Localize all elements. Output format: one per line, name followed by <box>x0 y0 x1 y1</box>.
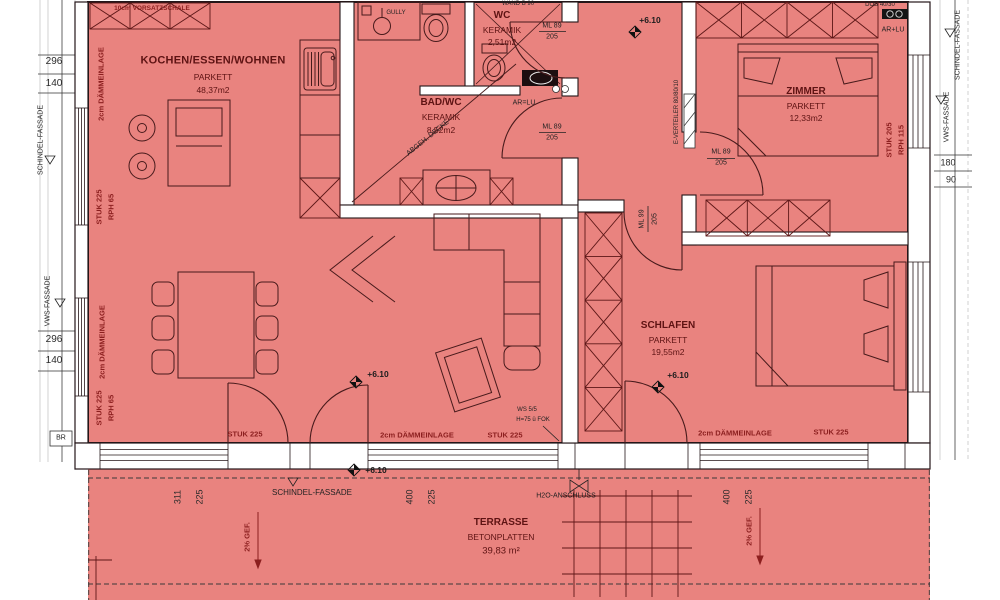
gully-label: GULLY <box>386 10 405 16</box>
dim-140-low: 140 <box>46 356 63 366</box>
daemmeinlage-left-low: 2cm DÄMMEINLAGE <box>98 305 106 379</box>
ws-label: WS 5/5 <box>517 407 537 413</box>
ar-lu-bad-label: AR=LU <box>513 100 536 107</box>
vws-right-vertical: VWS-FASSADE <box>944 92 951 143</box>
room-wc-floor: KERAMIK <box>483 26 521 35</box>
room-bad-floor: KERAMIK <box>422 113 460 122</box>
apartment-area <box>88 2 908 443</box>
door-label-wc: ML 89 <box>542 23 561 30</box>
room-wohnen-name: KOCHEN/ESSEN/WOHNEN <box>141 56 286 67</box>
stuk205-right: STUK 205 <box>885 122 893 157</box>
door-height-wc: 205 <box>546 34 558 41</box>
vws-left-vertical: VWS-FASSADE <box>45 276 52 327</box>
daemmeinlage-left-top: 2cm DÄMMEINLAGE <box>97 47 105 121</box>
gefaelle-left-label: 2% GEF. <box>243 522 251 552</box>
ws-height-label: H=75 ü FOK <box>516 417 550 423</box>
room-wc-area: 2,51m2 <box>488 38 516 47</box>
everteiler-label: E-VERTEILER 80/80/10 <box>674 80 680 144</box>
elevation-schlafen: +6.10 <box>667 371 689 380</box>
room-schlafen-name: SCHLAFEN <box>641 321 695 331</box>
room-schlafen-floor: PARKETT <box>649 336 688 345</box>
room-bad-name: BAD/WC <box>420 98 461 108</box>
door-label-zimmer: ML 89 <box>711 149 730 156</box>
daemmeinlage-bottom-1: 2cm DÄMMEINLAGE <box>380 431 454 439</box>
dim-140-top: 140 <box>46 79 63 89</box>
door-height-schlafen: 205 <box>652 213 659 225</box>
dim-225-bottom-2: 225 <box>428 489 437 504</box>
room-zimmer-floor: PARKETT <box>787 102 826 111</box>
dob-label: DOB 40/30 <box>865 2 895 8</box>
door-height-zimmer: 205 <box>715 160 727 167</box>
dim-296-top: 296 <box>46 57 63 67</box>
dim-400-bottom-2: 400 <box>723 489 732 504</box>
dim-400-bottom-1: 400 <box>406 489 415 504</box>
door-height-bad: 205 <box>546 135 558 142</box>
rph65-left-low: RPH 65 <box>107 395 115 421</box>
dim-225-bottom-1: 225 <box>196 489 205 504</box>
stuk225-left-low: STUK 225 <box>95 390 103 425</box>
br-label: BR <box>56 435 66 442</box>
h2o-label: H2O-ANSCHLUSS <box>536 493 596 500</box>
room-terrasse-name: TERRASSE <box>474 518 528 528</box>
ar-lu-zimmer-label: AR+LU <box>882 27 905 34</box>
dim-296-low: 296 <box>46 335 63 345</box>
dim-311-bottom: 311 <box>174 490 183 504</box>
schindel-right-vertical: SCHINDEL-FASSADE <box>955 10 962 80</box>
room-zimmer-name: ZIMMER <box>786 87 825 97</box>
gefaelle-right-label: 2% GEF. <box>745 516 753 546</box>
elevation-hall: +6.10 <box>639 16 661 25</box>
dim-225-bottom-3: 225 <box>745 489 754 504</box>
stuk225-left-top: STUK 225 <box>95 189 103 224</box>
schindel-bottom-label: SCHINDEL-FASSADE <box>272 489 352 497</box>
schindel-left-vertical: SCHINDEL-FASSADE <box>38 105 45 175</box>
stuk225-bottom-3: STUK 225 <box>813 428 848 436</box>
door-label-bad: ML 89 <box>542 124 561 131</box>
elevation-living: +6.10 <box>367 370 389 379</box>
room-wc-name: WC <box>494 11 511 21</box>
room-wohnen-floor: PARKETT <box>194 73 233 82</box>
dim-180-right: 180 <box>940 159 955 168</box>
rph65-left-top: RPH 65 <box>107 194 115 220</box>
room-schlafen-area: 19,55m2 <box>651 348 684 357</box>
vorsatzschale-label: 10cm VORSATZSCHALE <box>114 6 190 13</box>
door-label-schlafen: ML 99 <box>639 209 646 228</box>
rph115-right: RPH 115 <box>897 125 905 155</box>
room-zimmer-area: 12,33m2 <box>789 114 822 123</box>
room-terrasse-area: 39,83 m² <box>482 546 520 556</box>
room-terrasse-floor: BETONPLATTEN <box>468 533 535 542</box>
elevation-terrace: +6.10 <box>365 466 387 475</box>
daemmeinlage-bottom-2: 2cm DÄMMEINLAGE <box>698 429 772 437</box>
wand-b90-label: WAND B 90 <box>502 1 534 7</box>
floorplan-drawing <box>0 0 1000 600</box>
dim-90-right: 90 <box>946 176 956 185</box>
stuk225-bottom-1: STUK 225 <box>227 430 262 438</box>
room-wohnen-area: 48,37m2 <box>196 86 229 95</box>
stuk225-bottom-2: STUK 225 <box>487 431 522 439</box>
floor-plan-canvas: 10cm VORSATZSCHALE KOCHEN/ESSEN/WOHNEN P… <box>0 0 1000 600</box>
